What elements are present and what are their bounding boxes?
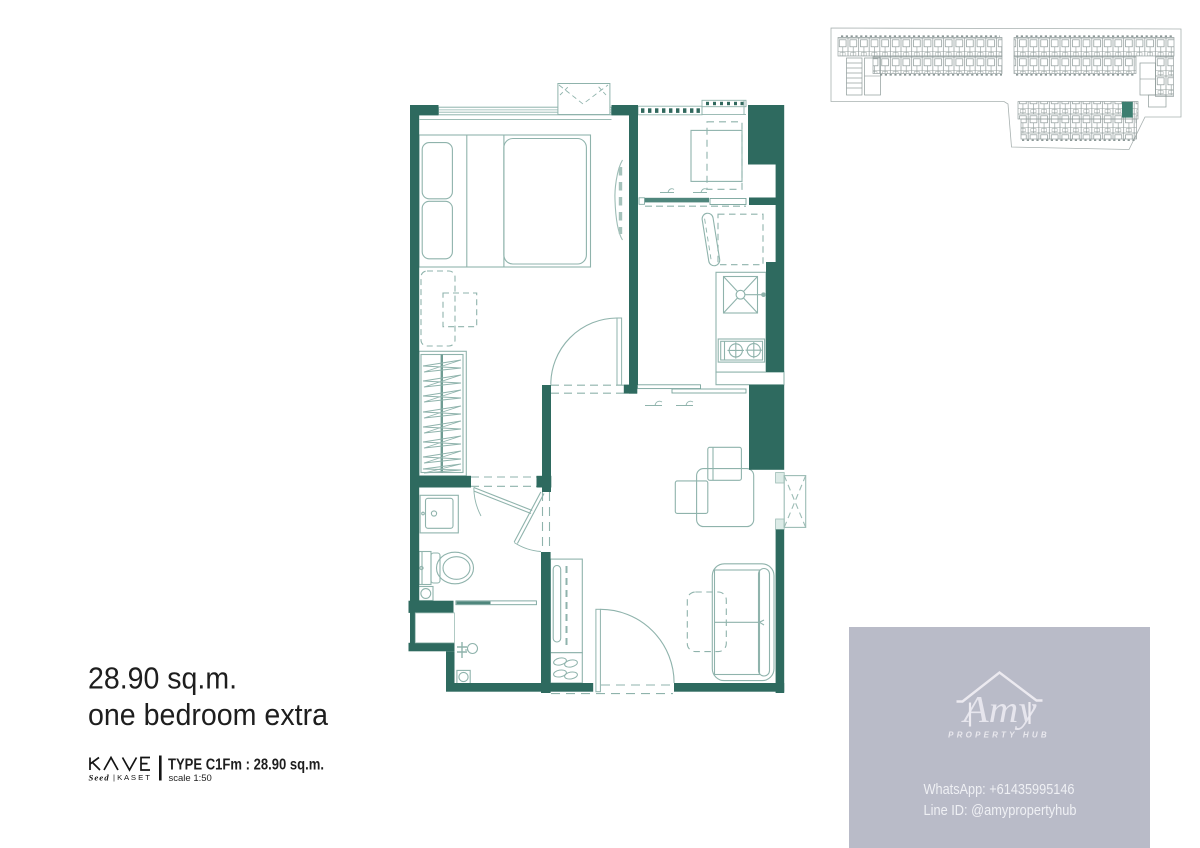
svg-text:PROPERTY HUB: PROPERTY HUB xyxy=(948,731,1050,740)
svg-text:TYPE C1Fm : 28.90 sq.m.: TYPE C1Fm : 28.90 sq.m. xyxy=(168,757,324,774)
svg-text:| K A S E T: | K A S E T xyxy=(113,775,151,782)
svg-text:Line ID: @amypropertyhub: Line ID: @amypropertyhub xyxy=(924,803,1077,819)
svg-text:one bedroom extra: one bedroom extra xyxy=(88,697,329,732)
svg-text:Amy: Amy xyxy=(960,689,1036,731)
svg-text:28.90 sq.m.: 28.90 sq.m. xyxy=(88,661,237,696)
svg-text:scale 1:50: scale 1:50 xyxy=(169,773,212,784)
svg-text:WhatsApp: +61435995146: WhatsApp: +61435995146 xyxy=(924,782,1075,798)
svg-text:Seed: Seed xyxy=(89,773,110,783)
